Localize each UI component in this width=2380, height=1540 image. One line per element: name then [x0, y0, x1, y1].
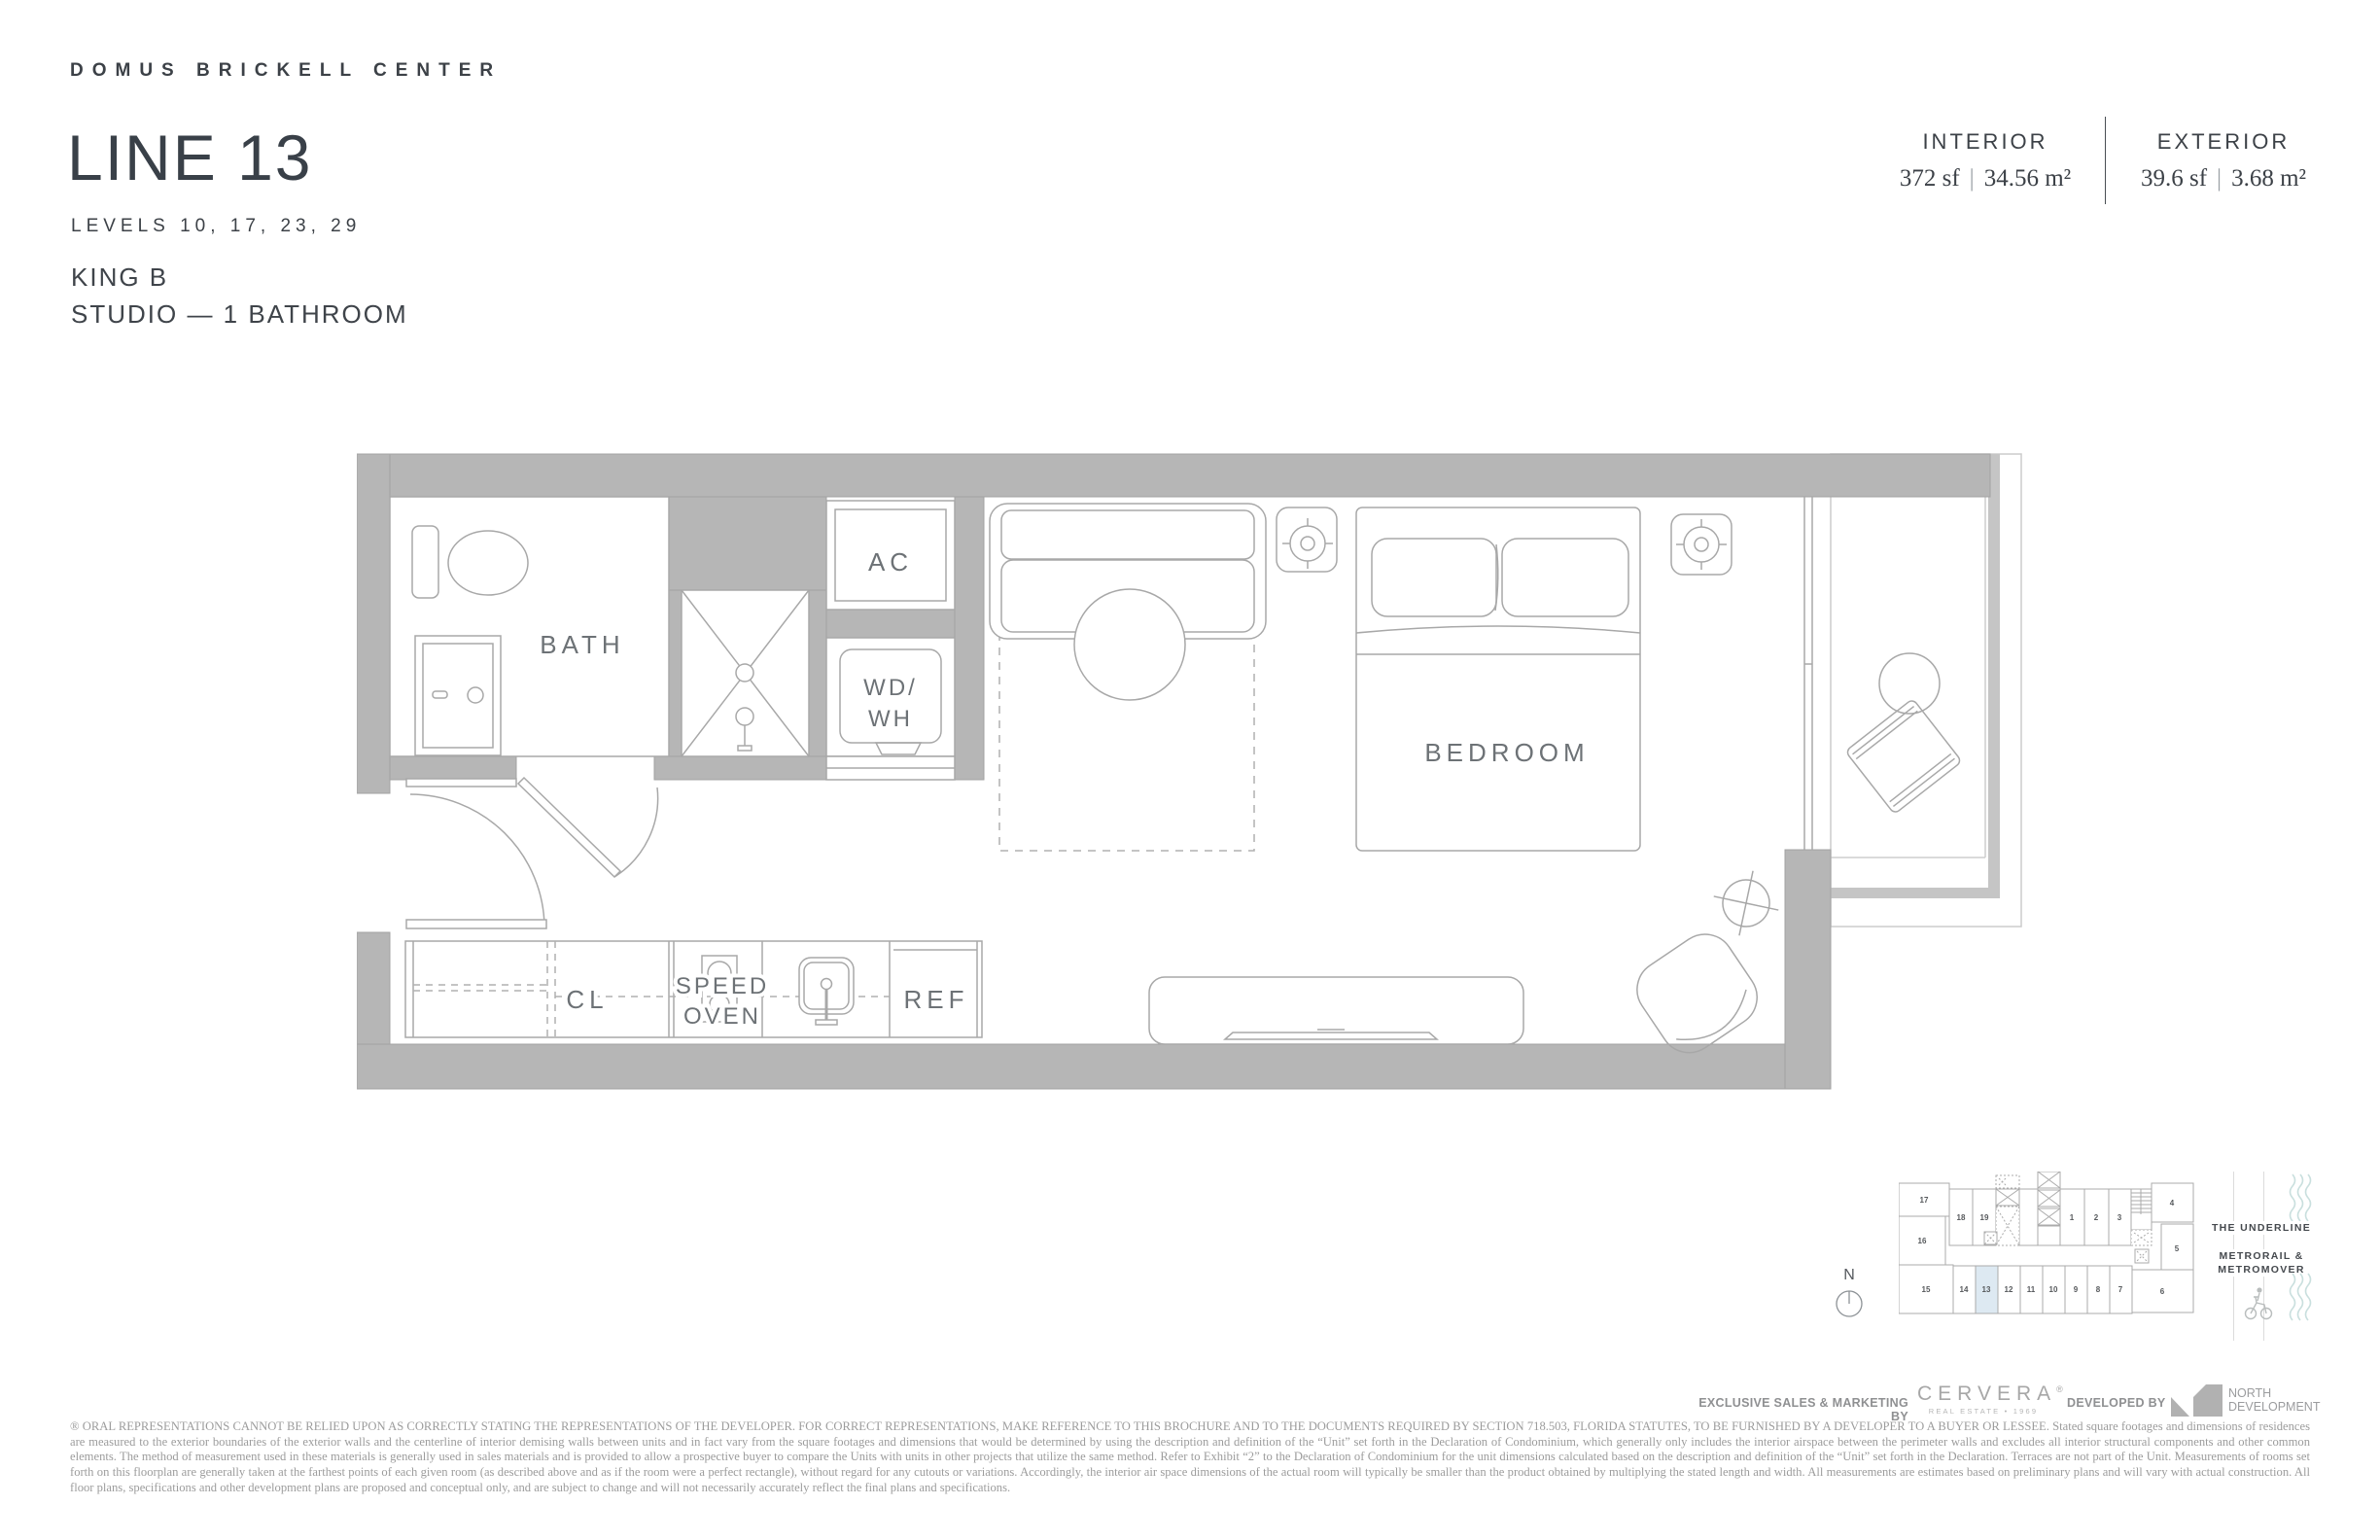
exterior-sf: 39.6 sf [2141, 165, 2207, 192]
interior-values: 372 sf|34.56 m² [1878, 165, 2092, 192]
bath-label: BATH [540, 630, 624, 659]
closet-label: CL [566, 985, 608, 1014]
bed-icon [1356, 507, 1640, 851]
lounge-chair-icon [1626, 923, 1768, 1064]
wh-label: WH [868, 706, 913, 732]
page-title: LINE 13 [67, 121, 312, 194]
unit-type: KING B [71, 262, 168, 293]
shower-icon [682, 590, 809, 756]
cervera-wordmark: CERVERA® [1917, 1382, 2049, 1406]
nightstand-right-icon [1671, 514, 1732, 575]
tv-console-icon [1149, 977, 1523, 1044]
unit-7: 7 [2118, 1285, 2123, 1294]
water-wave-icon [2289, 1173, 2314, 1222]
unit-3: 3 [2117, 1213, 2122, 1222]
unit-6: 6 [2160, 1287, 2165, 1296]
legal-disclaimer: ® ORAL REPRESENTATIONS CANNOT BE RELIED … [70, 1419, 2310, 1496]
unit-13: 13 [1982, 1285, 1991, 1294]
stats-divider [2105, 117, 2106, 204]
unit-14: 14 [1960, 1285, 1969, 1294]
entry-door-icon [406, 779, 546, 928]
unit-4: 4 [2170, 1199, 2175, 1207]
speed-label: SPEED [676, 973, 769, 999]
registered-mark: ® [2056, 1384, 2063, 1394]
interior-sf: 372 sf [1900, 165, 1960, 192]
balcony-window-wall [1804, 497, 1812, 850]
unit-15: 15 [1922, 1285, 1931, 1294]
round-table-icon [1074, 589, 1185, 700]
bath-door-icon [518, 778, 658, 877]
unit-18: 18 [1957, 1213, 1966, 1222]
exterior-values: 39.6 sf|3.68 m² [2117, 165, 2330, 192]
developed-by-label: DEVELOPED BY [2067, 1396, 2166, 1410]
levels-subtitle: LEVELS 10, 17, 23, 29 [71, 216, 361, 237]
balcony-slab-bottom [1831, 888, 2000, 898]
unit-8: 8 [2096, 1285, 2101, 1294]
transit-context: THE UNDERLINE METRORAIL & METROMOVER [2205, 1172, 2318, 1343]
interior-m2: 34.56 m² [1984, 165, 2071, 192]
brochure-page: DOMUS BRICKELL CENTER LINE 13 LEVELS 10,… [0, 0, 2380, 1540]
wd-label: WD/ [863, 675, 918, 701]
bedroom-label: BEDROOM [1424, 738, 1589, 767]
exterior-m2: 3.68 m² [2231, 165, 2306, 192]
floorplan-drawing: BATH AC WD/ WH BEDROOM CL SPEED OVEN REF [357, 452, 2027, 1094]
separator: | [1960, 165, 1984, 192]
underline-label: THE UNDERLINE [2205, 1222, 2318, 1234]
unit-9: 9 [2074, 1285, 2079, 1294]
exterior-stats: EXTERIOR 39.6 sf|3.68 m² [2117, 129, 2330, 192]
unit-5: 5 [2175, 1244, 2180, 1253]
balcony-table-icon [1879, 653, 1940, 714]
exterior-label: EXTERIOR [2117, 129, 2330, 155]
bath-room [390, 497, 669, 756]
wall-pillar [1785, 850, 1831, 1089]
bicycle-icon [2244, 1280, 2273, 1321]
cervera-logo: CERVERA® REAL ESTATE • 1969 [1917, 1382, 2049, 1416]
north-compass-icon: N [1830, 1262, 1869, 1322]
interior-label: INTERIOR [1878, 129, 2092, 155]
unit-12: 12 [2005, 1285, 2013, 1294]
stairs-icon [2131, 1189, 2152, 1245]
north-development-name: NORTH DEVELOPMENT [2228, 1386, 2320, 1414]
building-key-plan: 17 16 18 19 1 2 3 4 5 15 14 13 12 11 10 … [1899, 1172, 2200, 1317]
interior-stats: INTERIOR 372 sf|34.56 m² [1878, 129, 2092, 192]
unit-17: 17 [1920, 1196, 1929, 1205]
unit-10: 10 [2049, 1285, 2058, 1294]
oven-label: OVEN [683, 1003, 761, 1030]
separator: | [2207, 165, 2231, 192]
side-table-icon [1707, 864, 1786, 943]
nightstand-left-icon [1277, 507, 1337, 572]
unit-config: STUDIO — 1 BATHROOM [71, 299, 408, 330]
water-wave-icon [2289, 1273, 2314, 1323]
unit-2: 2 [2094, 1213, 2099, 1222]
ac-label: AC [868, 547, 913, 577]
unit-1: 1 [2070, 1213, 2075, 1222]
north-development-logo-icon [2171, 1384, 2223, 1417]
cervera-tagline: REAL ESTATE • 1969 [1917, 1407, 2049, 1416]
ref-label: REF [904, 985, 969, 1014]
compass-n: N [1843, 1267, 1855, 1283]
unit-19: 19 [1980, 1213, 1989, 1222]
balcony-chair-icon [1845, 699, 1962, 815]
balcony-slab-right [1988, 454, 2000, 898]
unit-11: 11 [2027, 1285, 2036, 1294]
unit-16: 16 [1918, 1237, 1927, 1245]
brand-name: DOMUS BRICKELL CENTER [70, 60, 502, 82]
